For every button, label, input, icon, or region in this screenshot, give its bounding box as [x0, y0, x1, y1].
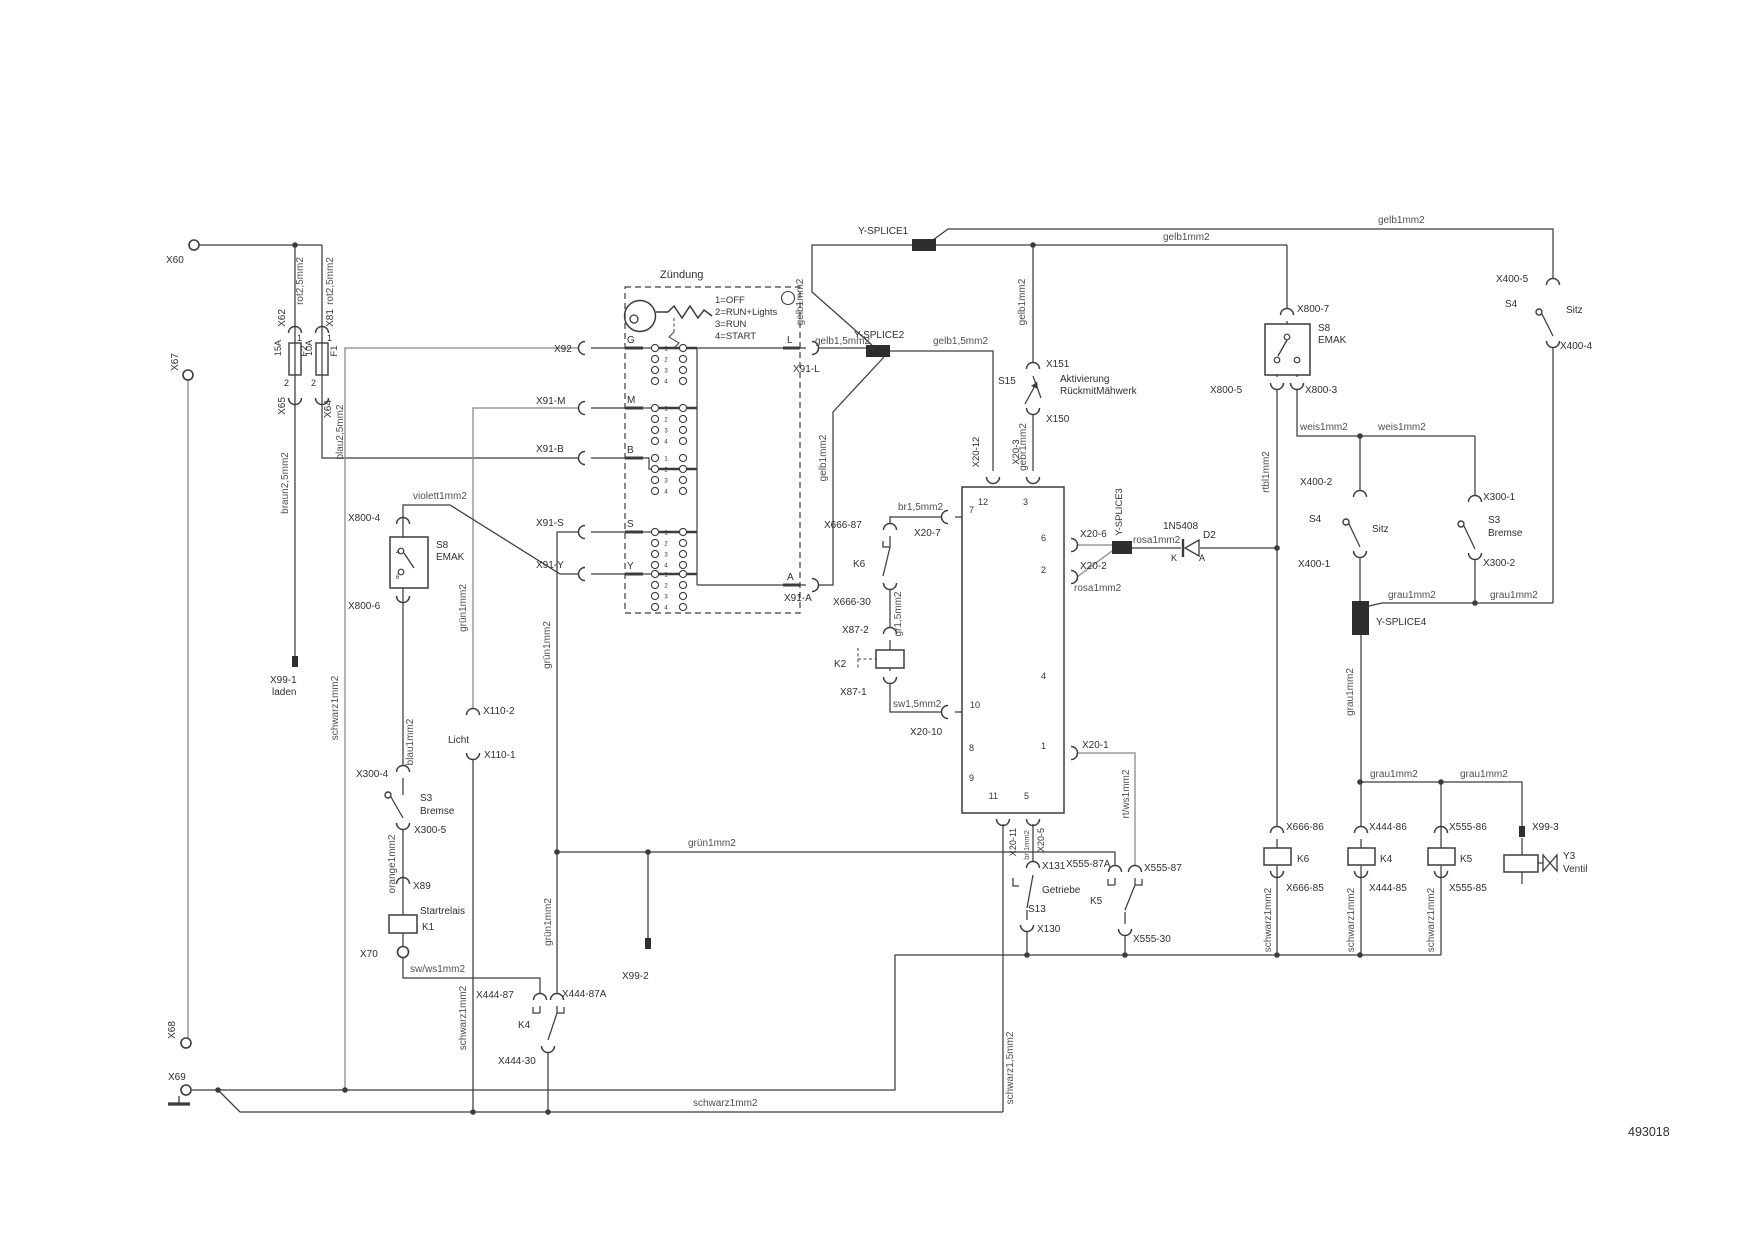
switch-pivot [1458, 521, 1464, 527]
switch-pivot [385, 792, 391, 798]
label: X91-B [536, 444, 564, 455]
ignition-contact [679, 454, 686, 461]
ignition-contact-number: 3 [664, 369, 668, 375]
wire-label: weis1mm2 [1377, 422, 1426, 433]
label: Licht [448, 735, 469, 746]
connector-x800-5 [1271, 383, 1284, 390]
connector-x110-1 [467, 753, 480, 760]
label: X68 [167, 1021, 178, 1039]
junction-dot [1472, 600, 1478, 606]
label: X400-4 [1560, 341, 1593, 352]
wire-label: schwarz1,5mm2 [1005, 1031, 1016, 1104]
label: X87-1 [840, 687, 867, 698]
wire-label: gelb1mm2 [1017, 278, 1028, 325]
label: 11 [989, 791, 998, 801]
label: X444-85 [1369, 883, 1407, 894]
wire [548, 1013, 557, 1040]
ignition-contact [679, 550, 686, 557]
switch-s8-left-contact [398, 569, 404, 575]
ignition-contact [651, 570, 658, 577]
ignition-contact-number: 1 [664, 457, 668, 463]
junction-dot [1438, 779, 1444, 785]
wire [1369, 603, 1553, 606]
wire-label: gr1,5mm2 [893, 591, 904, 636]
wire-label: grün1mm2 [458, 584, 469, 632]
label: X444-87A [562, 989, 607, 1000]
wire [557, 852, 1115, 865]
terminal-x68 [181, 1038, 191, 1048]
connector-x91-b [579, 452, 586, 465]
label: X92 [554, 344, 572, 355]
ignition-contact-number: 4 [664, 606, 668, 612]
label: X87-2 [842, 625, 869, 636]
label: 1N5408 [1163, 521, 1198, 532]
label: S15 [998, 376, 1016, 387]
connector-x800-7 [1281, 309, 1294, 316]
ignition-contact [679, 366, 686, 373]
connector-x444-30 [542, 1046, 555, 1053]
label: X20-1 [1082, 740, 1109, 751]
wire-label: grau1mm2 [1460, 769, 1508, 780]
ignition-contact-number: 4 [664, 490, 668, 496]
label: X300-1 [1483, 492, 1516, 503]
label: X300-2 [1483, 558, 1516, 569]
connector-x400-1 [1354, 551, 1367, 558]
switch-s8-right-contact [1274, 357, 1280, 363]
switch-s15-arrow [1031, 382, 1038, 389]
connector-x87-1 [884, 677, 897, 684]
label: Getriebe [1042, 885, 1081, 896]
label: 15A [273, 340, 283, 356]
connector-x400-2 [1354, 491, 1367, 498]
label: X20-11 [1008, 828, 1018, 856]
label: S3 [420, 793, 433, 804]
ignition-pin-letter: M [627, 395, 635, 406]
label: X800-5 [1210, 385, 1243, 396]
label: X99-3 [1532, 822, 1559, 833]
junction-dot [1274, 545, 1280, 551]
junction-dot [1274, 952, 1280, 958]
terminal-x67 [183, 370, 193, 380]
label: 1 [1041, 741, 1046, 751]
label: X555-87A [1066, 859, 1111, 870]
junction-dot [1357, 952, 1363, 958]
label: X99-1 [270, 675, 297, 686]
junction-dot [1030, 242, 1036, 248]
ignition-contact-number: 3 [664, 479, 668, 485]
connector-x20-3 [1027, 477, 1040, 484]
wire-label: gelb1mm2 [795, 278, 806, 325]
connector-x666-87 [884, 524, 897, 531]
wire [890, 517, 941, 524]
terminal-x60 [189, 240, 199, 250]
wire-label: rot2,5mm2 [325, 257, 336, 305]
wire-label: schwarz1mm2 [458, 985, 469, 1050]
wire [345, 348, 579, 1090]
ignition-contact [679, 377, 686, 384]
wire [192, 955, 1441, 1090]
connector-x150 [1027, 408, 1040, 415]
label: X110-1 [484, 750, 516, 761]
wire-label: braun2,5mm2 [280, 452, 291, 514]
relay-coil-k6 [1264, 848, 1291, 865]
ignition-contact [651, 426, 658, 433]
wire-label: schwarz1mm2 [1426, 887, 1437, 952]
junction-dot [215, 1087, 221, 1093]
connector-x400-4 [1547, 341, 1560, 348]
ignition-contact [651, 487, 658, 494]
label: A [1199, 553, 1205, 563]
terminal-x99-3 [1519, 826, 1525, 837]
label: X555-30 [1133, 934, 1171, 945]
ignition-contact [679, 561, 686, 568]
schematic-page: Zündung1=OFF2=RUN+Lights3=RUN4=STARTG123… [0, 0, 1754, 1240]
control-block [962, 487, 1064, 813]
label: 8 [969, 743, 974, 753]
label: X99-2 [622, 971, 649, 982]
label: K5 [1460, 854, 1473, 865]
label: X130 [1037, 924, 1061, 935]
wire [391, 797, 403, 818]
ignition-contact [679, 570, 686, 577]
label: X151 [1046, 359, 1070, 370]
ignition-contact [679, 603, 686, 610]
ignition-contact [651, 539, 658, 546]
ignition-contact-number: 3 [664, 429, 668, 435]
label: X300-4 [356, 769, 389, 780]
relay-coil-k2 [876, 650, 904, 668]
label: X300-5 [414, 825, 447, 836]
ignition-contact [679, 581, 686, 588]
label: K2 [834, 659, 847, 670]
connector-x91-s [579, 526, 586, 539]
label: X555-86 [1449, 822, 1487, 833]
label: EMAK [436, 552, 465, 563]
junction-dot [545, 1109, 551, 1115]
ignition-contact [679, 437, 686, 444]
y-splice4 [1352, 601, 1369, 635]
terminal-x99-2 [645, 938, 651, 949]
connector-x110-2 [467, 709, 480, 716]
wire-label: blau1mm2 [405, 718, 416, 765]
ignition-contact [651, 561, 658, 568]
connector-x20-6 [1071, 539, 1078, 552]
label: X91-M [536, 396, 565, 407]
ignition-position-label: 3=RUN [715, 319, 747, 330]
switch-s8-emak-right [1265, 324, 1310, 375]
label: Sitz [1372, 524, 1389, 535]
ignition-contact [651, 603, 658, 610]
wire-label: grau1mm2 [1388, 590, 1436, 601]
label: K1 [422, 922, 435, 933]
label: X65 [277, 397, 288, 415]
ignition-contact-number: 2 [664, 358, 668, 364]
label: X444-86 [1369, 822, 1407, 833]
wire-label: violett1mm2 [413, 491, 467, 502]
label: X150 [1046, 414, 1070, 425]
ignition-contact-number: 4 [664, 440, 668, 446]
label: F1 [329, 345, 340, 356]
label: 9 [969, 773, 974, 783]
ignition-pin-letter: L [787, 335, 793, 346]
wire-label: grau1mm2 [1345, 668, 1356, 716]
label: 2 [311, 378, 316, 388]
label: X20-5 [1036, 828, 1046, 852]
ignition-corner-mark [782, 292, 795, 305]
label: RückmitMähwerk [1060, 386, 1138, 397]
ignition-contact-number: 4 [664, 564, 668, 570]
ignition-contact [651, 366, 658, 373]
ignition-pin-letter: S [627, 519, 634, 530]
connector-x800-3 [1291, 383, 1304, 390]
ignition-title: Zündung [660, 269, 703, 281]
label: X131 [1042, 861, 1066, 872]
wire-label: br1,5mm2 [898, 502, 943, 513]
wire [1349, 524, 1360, 547]
ignition-contact [651, 377, 658, 384]
label: X91-Y [536, 560, 564, 571]
wire [218, 1090, 1003, 1112]
connector-x92 [579, 342, 586, 355]
connector-x300-1 [1469, 496, 1482, 503]
ignition-contact [651, 404, 658, 411]
valve-y3-icon [1550, 855, 1557, 871]
switch-s8-right-contact [1294, 357, 1300, 363]
label: X800-4 [348, 513, 381, 524]
label: S4 [1309, 514, 1322, 525]
label: X20-2 [1080, 561, 1107, 572]
label: 4 [1041, 671, 1046, 681]
label: Startrelais [420, 906, 465, 917]
wire [933, 229, 1553, 279]
connector-x20-1 [1071, 747, 1078, 760]
ignition-contact-number: 3 [664, 553, 668, 559]
label: X89 [413, 881, 431, 892]
label: EMAK [1318, 335, 1347, 346]
connector-x555-87 [1129, 866, 1142, 873]
label: 3 [1023, 497, 1028, 507]
ignition-contact [651, 528, 658, 535]
wire-label: orange1mm2 [387, 834, 398, 893]
wire [1542, 314, 1553, 336]
switch-pivot [1343, 519, 1349, 525]
label: X400-5 [1496, 274, 1529, 285]
connector-x444-87 [534, 994, 547, 1001]
ignition-contact [651, 550, 658, 557]
wire [1013, 878, 1019, 886]
label: X67 [170, 353, 181, 371]
label: X800-7 [1297, 304, 1330, 315]
label: Bremse [1488, 528, 1523, 539]
key-icon [630, 315, 638, 323]
switch-pivot [1536, 309, 1542, 315]
ignition-contact [651, 592, 658, 599]
label: S8 [436, 540, 449, 551]
valve-y3-icon [1543, 855, 1550, 871]
wire-label: rosa1mm2 [1133, 535, 1181, 546]
junction-dot [554, 849, 560, 855]
label: Y-SPLICE4 [1376, 617, 1427, 628]
label: 2 [1041, 565, 1046, 575]
label: X20-6 [1080, 529, 1107, 540]
ignition-contact [679, 355, 686, 362]
label: K [1171, 553, 1177, 563]
label: Y-SPLICE1 [858, 226, 909, 237]
connector-x300-4 [397, 766, 410, 773]
connector-x400-5 [1547, 279, 1560, 286]
wire-label: weis1mm2 [1299, 422, 1348, 433]
label: 2 [284, 378, 289, 388]
label: 10 [970, 700, 980, 710]
label: S13 [1028, 904, 1046, 915]
wire-label: grün1mm2 [688, 838, 736, 849]
wire-label: schwarz1mm2 [330, 675, 341, 740]
label: X666-85 [1286, 883, 1324, 894]
connector-x300-2 [1469, 553, 1482, 560]
drawing-number: 493018 [1628, 1125, 1670, 1139]
connector-x151 [1027, 363, 1040, 370]
label: X555-85 [1449, 883, 1487, 894]
label: D2 [1203, 530, 1216, 541]
ignition-contact-number: 3 [664, 595, 668, 601]
terminal-x99-1 [292, 656, 298, 667]
connector-x20-10 [942, 706, 949, 719]
wire-label: gelb1mm2 [818, 434, 829, 481]
ignition-contact [679, 528, 686, 535]
label: X400-2 [1300, 477, 1333, 488]
terminal-x70 [398, 947, 409, 958]
ignition-contact [679, 592, 686, 599]
wire-label: grau1mm2 [1370, 769, 1418, 780]
connector-x666-86 [1271, 827, 1284, 834]
wire-label: gelb1,5mm2 [933, 336, 988, 347]
switch-s8-right-contact [1284, 334, 1290, 340]
label: Y-SPLICE3 [1114, 488, 1125, 536]
wire-label: brt1mm2 [1022, 830, 1031, 860]
wire-label: grün1mm2 [543, 898, 554, 946]
ignition-contact [679, 539, 686, 546]
y-splice3 [1112, 541, 1132, 554]
ignition-contact [651, 476, 658, 483]
connector-x20-2 [1071, 571, 1078, 584]
label: X91-L [793, 364, 820, 375]
wire-label: rtbl1mm2 [1261, 451, 1272, 493]
label: Y3 [1563, 851, 1576, 862]
label: K6 [1297, 854, 1310, 865]
diode-d2-icon [1185, 540, 1199, 556]
relay-coil-k5 [1428, 848, 1455, 865]
label: 6 [1041, 533, 1046, 543]
wire-label: grau1mm2 [1490, 590, 1538, 601]
ignition-pin-letter: Y [627, 561, 634, 572]
label: K4 [518, 1020, 531, 1031]
label: X800-3 [1305, 385, 1338, 396]
wire [557, 1007, 564, 1013]
wire-label: sw/ws1mm2 [410, 964, 465, 975]
junction-dot [1357, 779, 1363, 785]
key-icon [656, 306, 712, 318]
label: X800-6 [348, 601, 381, 612]
label: 1 [297, 333, 302, 343]
wire-label: rt/ws1mm2 [1121, 769, 1132, 818]
ignition-contact [679, 344, 686, 351]
label: X400-1 [1298, 559, 1331, 570]
label: X555-87 [1144, 863, 1182, 874]
junction-dot [1357, 433, 1363, 439]
ignition-contact [651, 437, 658, 444]
wire [533, 1007, 540, 1013]
label: 10A [304, 340, 314, 356]
ignition-contact [651, 465, 658, 472]
label: X444-87 [476, 990, 514, 1001]
label: Sitz [1566, 305, 1583, 316]
label: 7 [969, 505, 974, 515]
wire-label: schwarz1mm2 [693, 1098, 758, 1109]
wire-label: gelb1mm2 [1163, 232, 1210, 243]
wire [883, 541, 890, 547]
label: X20-3 [1011, 439, 1022, 464]
label: X20-10 [910, 727, 943, 738]
ignition-contact [679, 465, 686, 472]
ignition-contact [679, 415, 686, 422]
junction-dot [645, 849, 651, 855]
label: X444-30 [498, 1056, 536, 1067]
terminal-x69 [181, 1085, 191, 1095]
wire [883, 547, 890, 576]
wire [1135, 879, 1142, 885]
ignition-pin-letter: G [627, 335, 635, 346]
ignition-contact [679, 426, 686, 433]
ignition-contact [651, 355, 658, 362]
ignition-contact [679, 487, 686, 494]
wiring-diagram: Zündung1=OFF2=RUN+Lights3=RUN4=STARTG123… [0, 0, 1754, 1240]
junction-dot [1122, 952, 1128, 958]
junction-dot [342, 1087, 348, 1093]
ignition-position-label: 4=START [715, 331, 756, 342]
wire-label: blau2,5mm2 [335, 404, 346, 459]
label: Aktivierung [1060, 374, 1109, 385]
wire-label: gelb1mm2 [1378, 215, 1425, 226]
ignition-contact-number: 2 [664, 584, 668, 590]
junction-dot [292, 242, 298, 248]
relay-coil-k1 [389, 915, 417, 933]
connector-x20-12 [987, 477, 1000, 484]
connector-x444-86 [1355, 827, 1368, 834]
label: S4 [1505, 299, 1518, 310]
connector-x555-30 [1119, 929, 1132, 936]
label: X62 [277, 309, 288, 327]
valve-coil-y3 [1504, 855, 1538, 872]
junction-dot [470, 1109, 476, 1115]
label: Ventil [1563, 864, 1587, 875]
ignition-contact [651, 581, 658, 588]
connector-x130 [1021, 925, 1034, 932]
connector-x91-y [579, 568, 586, 581]
label: X70 [360, 949, 378, 960]
label: X20-12 [971, 437, 982, 468]
label: 5 [1024, 791, 1029, 801]
label: laden [272, 687, 296, 698]
connector-x91-m [579, 402, 586, 415]
label-x60: X60 [166, 255, 184, 266]
wire-label: schwarz1mm2 [1263, 887, 1274, 952]
label: S3 [1488, 515, 1501, 526]
ignition-pin-letter: B [627, 445, 634, 456]
label: X666-30 [833, 597, 871, 608]
label: 12 [978, 497, 988, 507]
wire-label: grün1mm2 [542, 621, 553, 669]
wire [322, 245, 579, 458]
